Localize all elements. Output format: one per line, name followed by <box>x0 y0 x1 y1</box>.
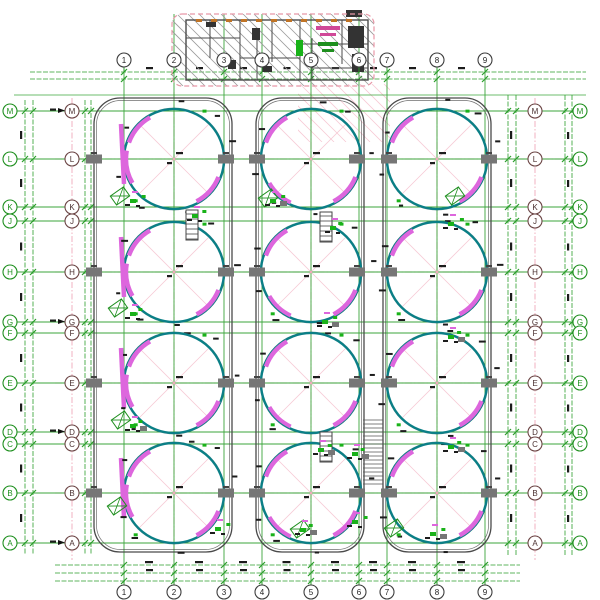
annotation-mark-green <box>340 444 344 447</box>
cluster-green-box <box>352 452 358 456</box>
arrow-text-mark <box>50 541 56 543</box>
center-label-mark <box>439 486 446 488</box>
pier-mark <box>486 376 492 378</box>
axis-bubble-right-outer-J-label: J <box>578 217 582 226</box>
cluster-gray-blob <box>458 447 465 452</box>
center-label-mark <box>313 152 320 154</box>
axis-bubble-top-3-label: 3 <box>222 56 227 65</box>
annotation-mark <box>317 322 322 324</box>
axis-bubble-bottom-8: 8 <box>430 585 444 599</box>
cluster-green-box <box>281 195 285 198</box>
cluster-green-box <box>138 420 142 423</box>
center-point <box>310 382 312 384</box>
pier-mark <box>386 152 392 154</box>
axis-bubble-top-8-label: 8 <box>435 56 440 65</box>
dim-text-mark <box>408 561 416 563</box>
axis-bubble-left-outer-K: K <box>3 200 17 214</box>
pink-hatch-line <box>372 84 430 142</box>
pier-mark <box>223 376 229 378</box>
annotation-mark <box>345 111 351 113</box>
cluster-green-box <box>142 195 146 198</box>
dim-text-mark <box>20 243 22 251</box>
axis-bubble-right-outer-C: C <box>573 437 587 451</box>
annotation-mark <box>256 519 261 521</box>
axis-bubble-top-9: 9 <box>478 53 492 67</box>
axis-bubble-bottom-6: 6 <box>352 585 366 599</box>
dim-text-mark <box>284 569 291 571</box>
cluster-violet-mark <box>217 519 223 521</box>
cluster-green-box <box>130 312 136 316</box>
axis-bubble-left-inner-L: L <box>65 152 79 166</box>
annotation-mark <box>495 140 500 142</box>
axis-bubble-left-outer-E: E <box>3 376 17 390</box>
axis-bubble-bottom-5-label: 5 <box>309 588 314 597</box>
annotation-mark <box>371 260 376 262</box>
cluster-mark <box>187 219 192 221</box>
building-fixture <box>252 28 260 40</box>
cluster-mark <box>210 532 215 534</box>
axis-bubble-top-8: 8 <box>430 53 444 67</box>
tank-enclosure-outer <box>94 98 232 552</box>
center-label-mark <box>304 275 309 277</box>
center-label-mark <box>430 162 435 164</box>
building-hatch-group <box>100 14 436 86</box>
hatch-line <box>364 14 436 86</box>
window-mark <box>256 19 262 22</box>
dim-text-mark <box>567 355 569 362</box>
annotation-mark <box>270 428 276 430</box>
wall-pier <box>381 155 397 164</box>
annotation-mark <box>125 127 129 129</box>
cluster-green-box <box>138 308 142 311</box>
center-label-mark <box>176 265 183 267</box>
pier-mark <box>486 486 492 488</box>
annotation-mark <box>399 205 403 207</box>
center-label-mark <box>313 265 320 267</box>
axis-bubble-right-outer-D-label: D <box>577 428 583 437</box>
dim-text-mark <box>20 131 22 139</box>
annotation-mark <box>443 324 448 326</box>
pier-mark <box>91 265 97 267</box>
cluster-green-box <box>192 214 198 218</box>
pier-mark <box>223 486 229 488</box>
wall-pier <box>249 268 265 277</box>
axis-bubble-left-outer-F-label: F <box>8 329 13 338</box>
axis-bubble-right-outer-K: K <box>573 200 587 214</box>
axis-bubble-right-inner-L-label: L <box>533 155 538 164</box>
annotation-mark <box>445 99 450 101</box>
window-mark <box>331 19 337 22</box>
axis-bubble-left-outer-D-label: D <box>7 428 13 437</box>
annotation-mark <box>254 248 261 250</box>
window-mark <box>241 19 247 22</box>
cluster-mark <box>136 205 140 207</box>
axis-bubble-right-inner-A-label: A <box>532 539 538 548</box>
cluster-gray-blob <box>458 337 465 342</box>
axis-bubble-bottom-7: 7 <box>380 585 394 599</box>
cluster-green-box <box>364 516 368 519</box>
pier-mark <box>223 265 229 267</box>
wall-pier <box>481 268 497 277</box>
wall-pier <box>86 268 102 277</box>
axis-bubble-left-outer-B: B <box>3 486 17 500</box>
center-point <box>310 158 312 160</box>
axis-bubble-bottom-4-label: 4 <box>260 588 265 597</box>
wall-pier <box>381 489 397 498</box>
axis-bubble-top-6-label: 6 <box>357 56 362 65</box>
dim-text-mark <box>20 354 22 362</box>
cluster-violet-mark <box>194 206 200 208</box>
pink-hatch-line <box>288 84 346 142</box>
annotation-mark-green <box>466 223 470 226</box>
dim-text-mark <box>283 561 291 563</box>
cluster-green-box <box>441 528 445 531</box>
dim-text-mark <box>20 179 22 187</box>
annotation-mark <box>213 338 219 340</box>
axis-bubble-left-inner-A-label: A <box>69 539 75 548</box>
hatch-line <box>133 14 205 86</box>
hatch-line <box>342 14 414 86</box>
annotation-mark <box>139 207 145 209</box>
annotation-mark-green <box>134 533 138 536</box>
enclosure-group <box>94 98 491 552</box>
axis-bubble-left-inner-J: J <box>65 214 79 228</box>
axis-bubble-left-inner-H: H <box>65 265 79 279</box>
window-mark <box>271 19 277 22</box>
annotation-mark <box>382 245 389 247</box>
plan-drawing: 112233445566778899MMMMLLLLKKKKJJJJHHHHGG… <box>0 0 600 600</box>
dim-text-mark <box>239 561 247 563</box>
annotation-mark <box>229 140 236 142</box>
annotation-mark <box>481 450 487 452</box>
axis-bubble-right-outer-M-label: M <box>577 107 584 116</box>
axis-bubble-top-7-label: 7 <box>385 56 390 65</box>
pink-hatch-line <box>276 84 334 142</box>
dim-text-mark <box>20 465 22 473</box>
center-label-mark <box>304 162 309 164</box>
dim-text-mark <box>510 243 512 251</box>
annotation-mark <box>386 353 393 355</box>
annotation-text-mark-magenta <box>316 26 340 30</box>
cluster-green-box <box>328 444 332 447</box>
cluster-green-box <box>338 222 342 225</box>
cluster-violet-mark <box>132 304 138 306</box>
axis-bubble-bottom-4: 4 <box>255 585 269 599</box>
cluster-mark <box>454 341 458 343</box>
axis-bubble-left-outer-A: A <box>3 536 17 550</box>
axis-bubble-bottom-1-label: 1 <box>122 588 127 597</box>
cluster-green-box <box>430 532 436 536</box>
cluster-mark <box>325 231 330 233</box>
annotation-mark <box>379 289 386 291</box>
annotation-mark <box>232 476 237 478</box>
axis-bubble-right-outer-H-label: H <box>577 268 583 277</box>
axis-bubble-right-inner-D-label: D <box>532 428 538 437</box>
cluster-green-box <box>460 218 464 221</box>
cluster-violet-mark <box>332 218 338 220</box>
arrow-text-mark <box>50 430 56 432</box>
axis-bubble-right-inner-B-label: B <box>532 489 537 498</box>
dimension-rails-group <box>20 67 586 584</box>
axis-bubble-top-1: 1 <box>117 53 131 67</box>
annotation-mark <box>179 100 185 102</box>
axis-bubble-top-3: 3 <box>217 53 231 67</box>
axis-bubble-left-inner-L-label: L <box>70 155 75 164</box>
axis-bubble-left-inner-C: C <box>65 437 79 451</box>
center-point <box>436 158 438 160</box>
dim-text-mark <box>370 569 377 571</box>
annotation-mark <box>121 407 125 409</box>
dim-text-mark <box>369 561 377 563</box>
pier-mark <box>91 486 97 488</box>
arrow-text-mark <box>50 109 56 111</box>
axis-bubble-left-inner-B: B <box>65 486 79 500</box>
annotation-mark <box>132 537 138 539</box>
axis-bubble-left-inner-K: K <box>65 200 79 214</box>
center-point <box>310 492 312 494</box>
center-point <box>173 492 175 494</box>
annotation-mark <box>255 399 260 401</box>
annotation-mark <box>320 101 327 103</box>
wall-pier <box>218 489 234 498</box>
axis-bubble-left-inner-D-label: D <box>69 428 75 437</box>
center-label-mark <box>439 376 446 378</box>
green-grid-group <box>14 14 586 588</box>
axis-bubble-right-inner-M-label: M <box>532 107 539 116</box>
hatch-line <box>254 14 326 86</box>
cluster-violet-mark <box>320 440 326 442</box>
center-label-mark <box>176 376 183 378</box>
pier-mark <box>386 376 392 378</box>
axis-bubble-left-outer-H: H <box>3 265 17 279</box>
axis-bubble-bottom-3: 3 <box>217 585 231 599</box>
dim-text-mark <box>567 132 569 139</box>
pier-mark <box>386 265 392 267</box>
annotation-mark-green <box>466 334 470 337</box>
detail-building-group <box>172 10 374 86</box>
pier-mark <box>354 376 360 378</box>
annotation-mark <box>123 354 127 356</box>
annotation-mark-green <box>397 312 401 315</box>
arrow-mark <box>58 540 65 545</box>
annotation-mark <box>378 403 385 405</box>
dim-text-mark <box>567 405 569 412</box>
axis-bubble-right-outer-H: H <box>573 265 587 279</box>
axis-bubble-bottom-9: 9 <box>478 585 492 599</box>
axis-bubble-left-outer-B-label: B <box>7 489 12 498</box>
window-mark <box>196 19 202 22</box>
axis-bubble-left-inner-F-label: F <box>70 329 75 338</box>
hatch-line <box>144 14 216 86</box>
cluster-green-box <box>330 226 336 230</box>
corridor-wedge <box>121 237 124 297</box>
cluster-mark <box>317 325 322 327</box>
hatch-line <box>100 14 172 86</box>
center-label-mark <box>313 376 320 378</box>
annotation-mark <box>215 115 220 117</box>
axis-bubble-left-inner-J-label: J <box>70 217 74 226</box>
axis-bubble-left-outer-M: M <box>3 104 17 118</box>
stair-box-group <box>110 187 129 205</box>
cluster-green-box <box>457 331 461 334</box>
cluster-violet-mark <box>450 437 456 439</box>
axis-bubble-top-2: 2 <box>167 53 181 67</box>
axis-bubble-left-inner-B-label: B <box>69 489 74 498</box>
annotation-mark <box>398 319 405 321</box>
wall-pier <box>86 379 102 388</box>
axis-bubble-bottom-2: 2 <box>167 585 181 599</box>
cluster-green-box <box>215 527 221 531</box>
dim-text-mark <box>510 514 512 522</box>
center-label-mark <box>167 386 172 388</box>
cluster-mark <box>125 317 130 319</box>
arrow-mark <box>58 429 65 434</box>
annotation-mark <box>444 551 448 553</box>
axis-bubble-left-outer-J-label: J <box>8 217 12 226</box>
cluster-gray-blob <box>280 201 287 206</box>
annotation-mark <box>175 324 180 326</box>
cluster-violet-mark <box>324 312 330 314</box>
window-mark <box>226 19 232 22</box>
tank-enclosure-outer <box>256 98 364 552</box>
dim-text-mark <box>240 569 247 571</box>
axis-bubble-left-outer-L: L <box>3 152 17 166</box>
wall-pier <box>381 379 397 388</box>
axis-bubble-right-inner-H: H <box>528 265 542 279</box>
axis-bubble-left-inner-H-label: H <box>69 268 75 277</box>
annotation-mark-green <box>466 110 470 113</box>
corridor-wedge <box>121 348 124 408</box>
axis-bubble-left-outer-F: F <box>3 326 17 340</box>
axis-bubble-bottom-7-label: 7 <box>385 588 390 597</box>
axis-bubble-right-outer-A-label: A <box>577 539 583 548</box>
annotation-mark-green <box>397 423 401 426</box>
cluster-mark <box>443 450 448 452</box>
annotation-mark <box>313 213 317 215</box>
axis-bubble-top-5: 5 <box>304 53 318 67</box>
axis-bubble-right-inner-C-label: C <box>532 440 538 449</box>
dim-text-mark <box>510 404 512 412</box>
annotation-mark <box>479 341 486 343</box>
cluster-mark <box>347 525 352 527</box>
dim-text-mark <box>567 294 569 301</box>
equipment-cluster <box>295 520 317 536</box>
annotation-mark <box>494 367 499 369</box>
cluster-green-box <box>448 335 454 339</box>
cad-drawing-canvas: 112233445566778899MMMMLLLLKKKKJJJJHHHHGG… <box>0 0 600 600</box>
cluster-violet-mark <box>354 444 360 446</box>
annotation-text-mark-magenta <box>320 33 336 36</box>
annotation-mark <box>388 457 394 459</box>
axis-bubble-left-inner-K-label: K <box>69 203 75 212</box>
annotation-mark <box>122 459 127 461</box>
corridor-wedge <box>121 124 124 184</box>
axis-bubble-top-4: 4 <box>255 53 269 67</box>
axis-bubble-top-7: 7 <box>380 53 394 67</box>
cluster-violet-mark <box>432 524 438 526</box>
annotation-mark <box>234 264 241 266</box>
center-label-mark <box>167 162 172 164</box>
center-label-mark <box>430 386 435 388</box>
cluster-violet-mark <box>132 416 138 418</box>
wall-pier <box>349 489 365 498</box>
cluster-mark <box>454 451 458 453</box>
axis-bubble-top-5-label: 5 <box>309 56 314 65</box>
annotation-mark <box>380 174 385 176</box>
annotation-mark <box>189 441 194 443</box>
axis-bubble-left-outer-C: C <box>3 437 17 451</box>
annotation-mark-green <box>397 199 401 202</box>
annotation-mark <box>475 112 482 114</box>
center-point <box>173 382 175 384</box>
axis-bubble-right-outer-B: B <box>573 486 587 500</box>
axis-bubble-right-outer-B-label: B <box>577 489 582 498</box>
axis-bubble-right-outer-E: E <box>573 376 587 390</box>
axis-bubble-left-outer-K-label: K <box>7 203 13 212</box>
annotation-mark <box>121 516 127 518</box>
cluster-green-box <box>202 210 206 213</box>
axis-bubble-right-inner-E: E <box>528 376 542 390</box>
wall-pier <box>249 155 265 164</box>
axis-bubble-right-inner-K: K <box>528 200 542 214</box>
axis-bubble-right-inner-H-label: H <box>532 268 538 277</box>
pier-mark <box>254 486 260 488</box>
cluster-mark <box>328 326 332 328</box>
dim-text-mark <box>567 466 569 473</box>
cluster-green-box <box>333 316 337 319</box>
hatch-line <box>309 14 381 86</box>
axis-bubble-right-inner-L: L <box>528 152 542 166</box>
annotation-mark <box>256 290 262 292</box>
annotation-mark <box>353 339 359 341</box>
annotation-mark <box>315 551 319 553</box>
pier-mark <box>354 265 360 267</box>
cluster-green-box <box>352 520 358 524</box>
annotation-mark <box>178 552 185 554</box>
dim-text-mark <box>146 67 153 69</box>
cluster-mark <box>336 232 340 234</box>
dim-text-mark <box>409 569 416 571</box>
axis-bubble-bottom-5: 5 <box>304 585 318 599</box>
pier-mark <box>354 152 360 154</box>
center-label-mark <box>176 152 183 154</box>
cluster-mark <box>221 533 225 535</box>
annotation-mark <box>370 374 375 376</box>
cluster-mark <box>425 537 430 539</box>
cluster-mark <box>136 430 140 432</box>
annotation-mark <box>369 152 373 154</box>
axis-bubble-bottom-9-label: 9 <box>483 588 488 597</box>
axis-bubble-left-outer-L-label: L <box>8 155 13 164</box>
axis-bubble-top-4-label: 4 <box>260 56 265 65</box>
arrow-mark <box>58 108 65 113</box>
axis-bubble-bottom-8-label: 8 <box>435 588 440 597</box>
annotation-mark <box>215 447 220 449</box>
center-label-mark <box>167 496 172 498</box>
axis-bubble-left-inner-E: E <box>65 376 79 390</box>
cluster-gray-blob <box>362 454 369 459</box>
center-label-mark <box>430 496 435 498</box>
axis-bubble-top-9-label: 9 <box>483 56 488 65</box>
annotation-mark-green <box>466 444 470 447</box>
dim-text-mark <box>510 354 512 362</box>
dim-text-mark <box>567 180 569 187</box>
annotation-mark-green <box>203 223 207 226</box>
wall-pier <box>349 268 365 277</box>
cluster-green-box <box>448 222 454 226</box>
cluster-violet-mark <box>354 512 360 514</box>
axis-bubble-right-outer-F-label: F <box>578 329 583 338</box>
